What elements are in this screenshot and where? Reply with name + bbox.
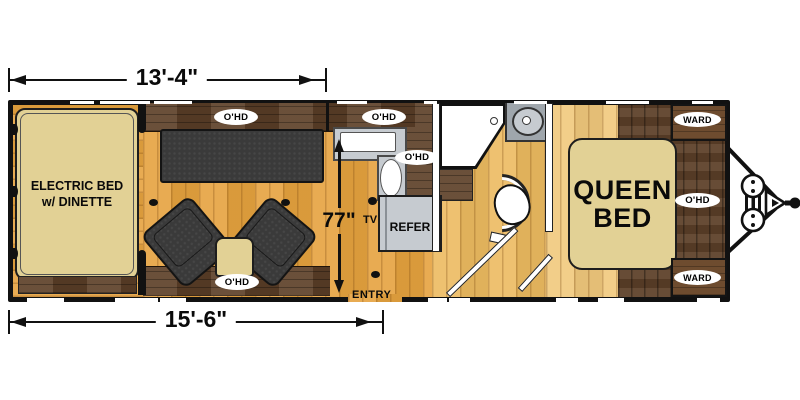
- window: [337, 101, 367, 105]
- bathroom-wall-left: [432, 103, 440, 252]
- overhead-cabinet-label: O'HD: [214, 109, 258, 125]
- wardrobe-label: WARD: [674, 112, 721, 127]
- window: [100, 101, 150, 105]
- dim-interior-line-lower: [338, 234, 341, 282]
- queen-bed: QUEEN BED: [568, 138, 677, 270]
- partition-wall-top-stub: [138, 103, 146, 133]
- overhead-cabinet-label: O'HD: [675, 193, 720, 208]
- sofa: [160, 129, 324, 183]
- refrigerator-label: REFER: [390, 220, 431, 234]
- dim-top-label: 13'-4": [127, 64, 207, 91]
- garage-step-cabinet: [18, 276, 137, 294]
- electric-bed-label-line1: ELECTRIC BED: [31, 178, 123, 194]
- window: [556, 298, 578, 302]
- window: [514, 101, 547, 105]
- dim-bottom-label: 15'-6": [156, 306, 236, 333]
- window: [697, 298, 720, 302]
- dim-bottom-arrow-right-icon: [356, 317, 371, 327]
- dim-interior-line-upper: [338, 150, 341, 208]
- dim-top-arrow-left-icon: [11, 75, 26, 85]
- floor-light-icon: [149, 199, 158, 206]
- wardrobe-label: WARD: [674, 270, 721, 285]
- overhead-cabinet-label: O'HD: [362, 109, 406, 125]
- electric-bed-label-line2: w/ DINETTE: [31, 194, 123, 210]
- bathroom-wall-right: [545, 103, 553, 232]
- dim-bottom-arrow-left-icon: [11, 317, 26, 327]
- electric-bed: ELECTRIC BED w/ DINETTE: [15, 108, 139, 280]
- queen-bed-label-line2: BED: [593, 204, 652, 232]
- window: [160, 298, 186, 302]
- floorplan-canvas: 13'-4" 15'-6": [0, 0, 800, 400]
- overhead-cabinet-label: O'HD: [395, 150, 439, 165]
- floor-light-icon: [281, 199, 290, 206]
- window: [154, 101, 192, 105]
- dim-interior-arrow-up-icon: [334, 139, 344, 152]
- overhead-cabinet-label: O'HD: [215, 274, 259, 290]
- shower-drain-icon: [490, 117, 498, 125]
- bathroom-vanity: [505, 103, 548, 142]
- table: [215, 237, 254, 277]
- bathroom-cabinet: [439, 169, 473, 201]
- wall-latch-icon: [12, 124, 18, 135]
- tv-mount-icon: [368, 197, 377, 205]
- window: [606, 101, 649, 105]
- window: [115, 298, 158, 302]
- trailer-hitch-icon: [726, 140, 800, 260]
- window: [449, 298, 470, 302]
- queen-bed-label-line1: QUEEN: [573, 176, 672, 204]
- dim-interior-arrow-down-icon: [334, 280, 344, 293]
- dim-interior-label: 77": [322, 209, 355, 233]
- window: [70, 101, 94, 105]
- sink-drain-icon: [522, 116, 531, 125]
- window: [598, 298, 624, 302]
- kitchen-sink: [340, 132, 396, 152]
- cooktop: [380, 159, 402, 197]
- dim-top-arrow-right-icon: [299, 75, 314, 85]
- refrigerator-door-line: [385, 197, 387, 250]
- dim-top-tick-right: [325, 68, 327, 92]
- window: [428, 298, 447, 302]
- trailer-body: ELECTRIC BED w/ DINETTE O'HD O'HD O'HD: [8, 100, 730, 302]
- entry-label: ENTRY: [352, 289, 391, 301]
- cabinet-divider: [326, 103, 329, 131]
- window: [692, 101, 713, 105]
- window: [27, 298, 64, 302]
- window: [424, 101, 437, 105]
- floor-light-icon: [371, 271, 380, 278]
- wall-latch-icon: [12, 186, 18, 197]
- wall-latch-icon: [12, 248, 18, 259]
- partition-wall-bottom-stub: [138, 250, 146, 295]
- tv-label: TV: [363, 214, 377, 226]
